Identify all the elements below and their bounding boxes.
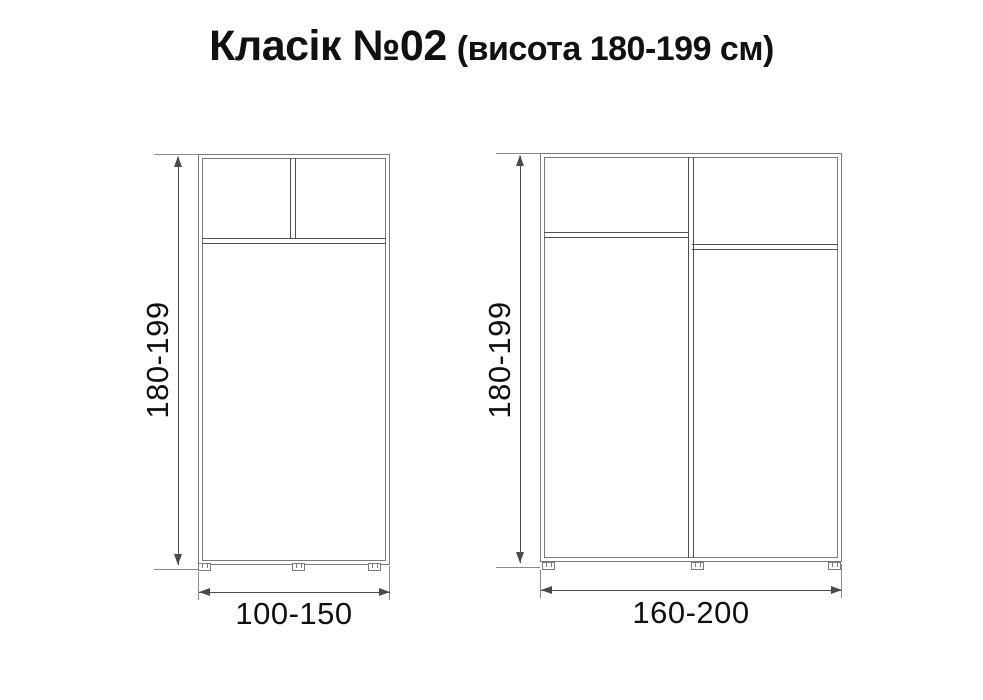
right-wardrobe-left-shelf [544,232,688,238]
right-wardrobe-diagram: 180-199 160-200 [0,0,983,700]
dimension-arrow-down-icon [516,552,524,563]
diagram-canvas: Класік №02(висота 180-199 см) 180-199 10… [0,0,983,700]
wardrobe-foot [542,562,555,570]
right-wardrobe-outline [540,153,842,562]
dimension-arrow-right-icon [831,586,842,594]
extension-line [496,153,540,154]
extension-line [496,567,540,568]
height-dimension-line [520,156,521,563]
height-dimension-label: 180-199 [485,295,515,425]
wardrobe-foot [691,562,704,570]
width-dimension-line [541,590,841,591]
dimension-arrow-up-icon [516,155,524,166]
right-wardrobe-right-shelf [692,244,838,250]
dimension-arrow-left-icon [541,586,552,594]
width-dimension-label: 160-200 [540,598,842,628]
wardrobe-foot [828,562,841,570]
right-wardrobe-center-divider [688,157,694,558]
